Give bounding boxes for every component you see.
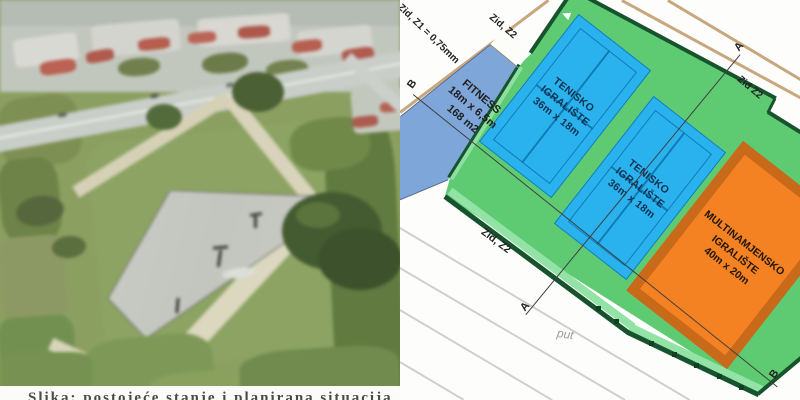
fence-post bbox=[694, 363, 699, 368]
photo-caption-clipped: Slika: postojeće stanje i planirana situ… bbox=[0, 386, 400, 400]
fence-post bbox=[717, 374, 722, 379]
plan-line bbox=[400, 309, 553, 400]
section-b-left-label: B bbox=[405, 77, 419, 90]
photo-shape bbox=[296, 202, 340, 228]
wall-z1-label: Zid, Z1 = 0,75mm bbox=[400, 2, 461, 66]
fence-post bbox=[672, 352, 677, 357]
fence-post bbox=[614, 319, 619, 324]
photo-shape bbox=[254, 216, 257, 228]
fence-post bbox=[649, 341, 654, 346]
fence-post bbox=[596, 306, 601, 311]
fence-post bbox=[739, 385, 744, 390]
multipurpose-label: MULTINAMJENSKO IGRALIŠTE 40m x 20m bbox=[683, 207, 788, 302]
road-put-label: put bbox=[556, 326, 574, 342]
photo-caption-text: Slika: postojeće stanje i planirana situ… bbox=[28, 390, 400, 400]
page: Slika: postojeće stanje i planirana situ… bbox=[0, 0, 800, 400]
photo-shape bbox=[146, 104, 182, 130]
plan-line bbox=[400, 361, 464, 400]
aerial-photo-scene bbox=[0, 0, 400, 400]
site-plan: TENISKO IGRALIŠTE 36m x 18m TENISKO IGRA… bbox=[400, 0, 800, 400]
section-a-top-label: A bbox=[732, 40, 746, 54]
section-a-bottom-label: A bbox=[518, 300, 532, 314]
aerial-photo: Slika: postojeće stanje i planirana situ… bbox=[0, 0, 400, 400]
photo-shape bbox=[318, 228, 400, 290]
photo-shape bbox=[232, 72, 284, 112]
